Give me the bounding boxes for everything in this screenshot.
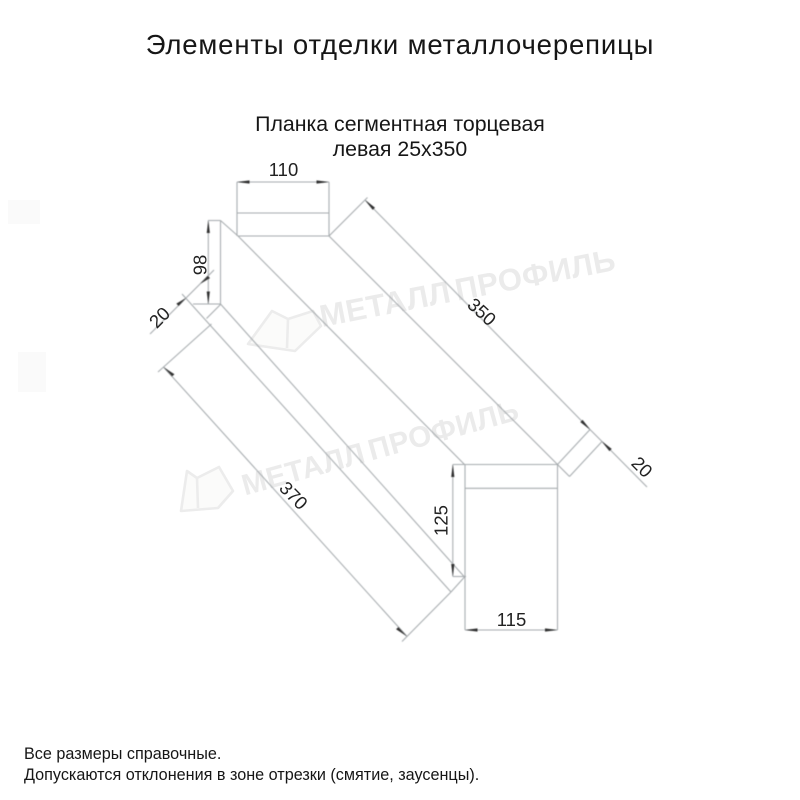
svg-text:Элементы отделки металлочерепи: Элементы отделки металлочерепицы bbox=[146, 29, 655, 60]
svg-text:левая 25х350: левая 25х350 bbox=[333, 137, 468, 161]
svg-text:115: 115 bbox=[497, 609, 527, 630]
svg-text:125: 125 bbox=[431, 505, 452, 536]
svg-text:110: 110 bbox=[269, 159, 299, 180]
svg-text:98: 98 bbox=[190, 255, 211, 276]
svg-text:Все размеры справочные.: Все размеры справочные. bbox=[24, 745, 221, 763]
svg-text:Планка сегментная торцевая: Планка сегментная торцевая bbox=[255, 112, 545, 136]
svg-text:Допускаются отклонения в зоне: Допускаются отклонения в зоне отрезки (с… bbox=[24, 766, 479, 784]
